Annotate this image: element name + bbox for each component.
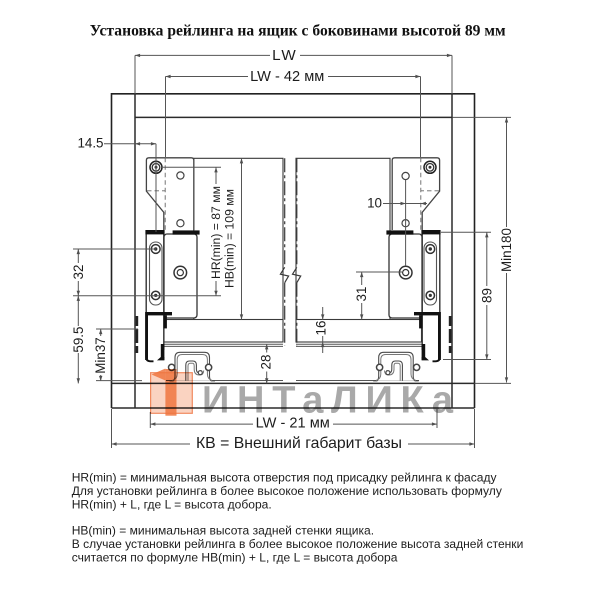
svg-text:10: 10 (367, 196, 382, 211)
svg-text:14.5: 14.5 (77, 136, 103, 151)
svg-text:HB(min) = минимальная высота з: HB(min) = минимальная высота задней стен… (72, 523, 374, 537)
svg-text:LW - 42 мм: LW - 42 мм (250, 69, 324, 85)
svg-text:LW: LW (272, 47, 298, 64)
svg-text:Min180: Min180 (499, 228, 514, 272)
svg-text:32: 32 (71, 265, 86, 280)
svg-text:Установка рейлинга на ящик с б: Установка рейлинга на ящик с боковинами … (90, 22, 506, 39)
svg-text:16: 16 (314, 321, 329, 336)
svg-text:Для установки рейлинга в более: Для установки рейлинга в более высокое п… (72, 484, 502, 498)
svg-text:КВ = Внешний габарит базы: КВ = Внешний габарит базы (196, 435, 402, 452)
svg-text:89: 89 (479, 288, 494, 303)
svg-text:HR(min) + L, где L = высота д: HR(min) + L, где L = высота добора. (72, 497, 272, 511)
svg-text:Min37: Min37 (93, 337, 108, 373)
svg-text:28: 28 (259, 355, 274, 370)
svg-text:В случае установки рейлинга в: В случае установки рейлинга в более высо… (72, 537, 524, 551)
svg-text:HR(min) = минимальная высота о: HR(min) = минимальная высота отверстия п… (72, 471, 497, 485)
svg-text:HB(min) = 109 мм: HB(min) = 109 мм (223, 189, 237, 288)
svg-text:считается по формуле HB(min) +: считается по формуле HB(min) + L, где L … (72, 550, 398, 564)
svg-text:59.5: 59.5 (71, 327, 86, 353)
svg-text:31: 31 (354, 287, 369, 302)
svg-text:HR(min) = 87 мм: HR(min) = 87 мм (209, 186, 223, 279)
